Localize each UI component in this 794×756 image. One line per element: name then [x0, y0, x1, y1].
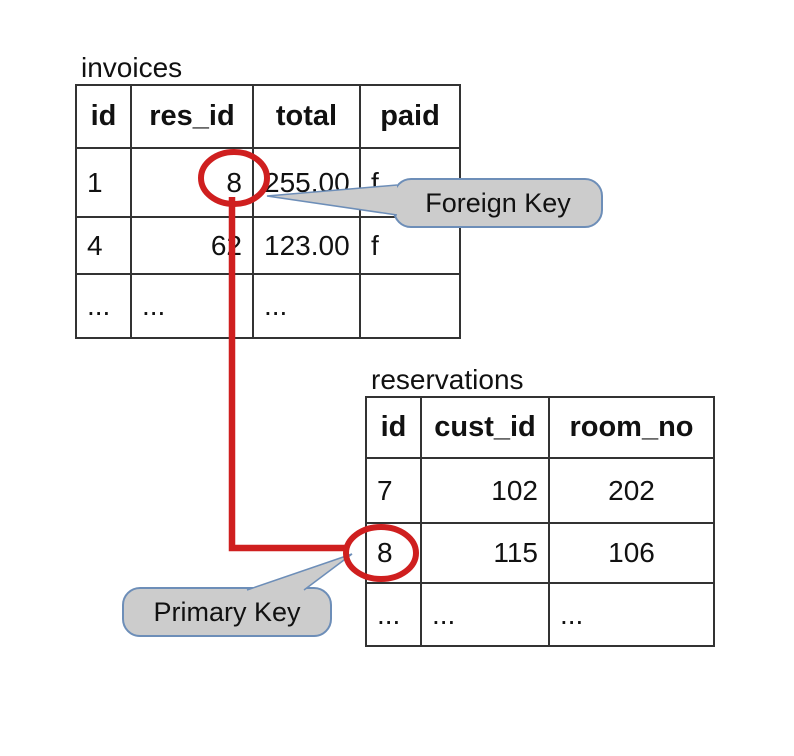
column-header-total: total — [253, 85, 360, 148]
primary-key-callout: Primary Key — [122, 587, 332, 637]
table-cell: 102 — [421, 458, 549, 523]
reservations-table: id cust_id room_no 7 102 202 8 115 106 .… — [365, 396, 715, 647]
table-cell: ... — [549, 583, 714, 646]
table-row: 8 115 106 — [366, 523, 714, 583]
table-cell: ... — [366, 583, 421, 646]
table-cell: ... — [76, 274, 131, 338]
column-header-id: id — [366, 397, 421, 458]
table-cell-foreign-key-value: 8 — [131, 148, 253, 217]
table-cell: ... — [421, 583, 549, 646]
table-cell: 1 — [76, 148, 131, 217]
primary-key-callout-tail — [247, 554, 352, 590]
invoices-table-title: invoices — [81, 54, 182, 82]
column-header-id: id — [76, 85, 131, 148]
table-row: ... ... ... — [76, 274, 460, 338]
table-cell: 106 — [549, 523, 714, 583]
foreign-key-callout-label: Foreign Key — [425, 188, 571, 219]
table-cell: 255.00 — [253, 148, 360, 217]
column-header-room-no: room_no — [549, 397, 714, 458]
table-cell: 62 — [131, 217, 253, 274]
table-cell: 123.00 — [253, 217, 360, 274]
reservations-header-row: id cust_id room_no — [366, 397, 714, 458]
table-cell: ... — [131, 274, 253, 338]
table-row: 7 102 202 — [366, 458, 714, 523]
reservations-table-title: reservations — [371, 366, 524, 394]
table-row: ... ... ... — [366, 583, 714, 646]
table-cell: 7 — [366, 458, 421, 523]
table-cell: 115 — [421, 523, 549, 583]
table-cell: 4 — [76, 217, 131, 274]
diagram-canvas: invoices id res_id total paid 1 8 255.00… — [0, 0, 794, 756]
primary-key-callout-label: Primary Key — [153, 597, 300, 628]
table-cell: 202 — [549, 458, 714, 523]
table-cell — [360, 274, 460, 338]
foreign-key-callout: Foreign Key — [393, 178, 603, 228]
invoices-header-row: id res_id total paid — [76, 85, 460, 148]
column-header-paid: paid — [360, 85, 460, 148]
table-cell-primary-key-value: 8 — [366, 523, 421, 583]
column-header-cust-id: cust_id — [421, 397, 549, 458]
column-header-res-id: res_id — [131, 85, 253, 148]
table-cell: ... — [253, 274, 360, 338]
